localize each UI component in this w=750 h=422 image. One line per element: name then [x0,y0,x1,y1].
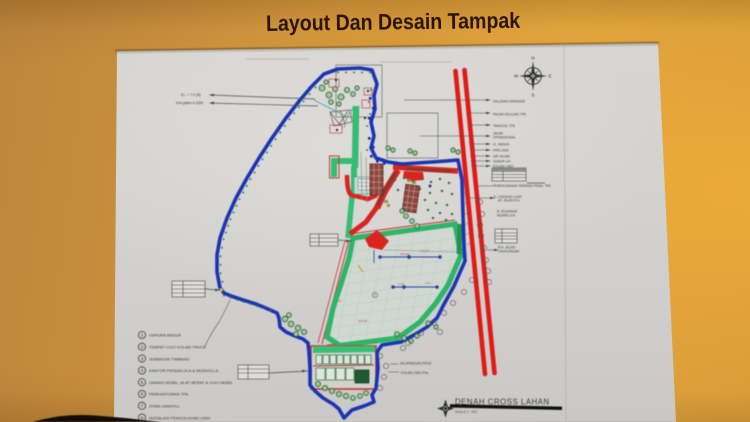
svg-text:1.67: 1.67 [398,282,404,286]
svg-text:E: E [548,74,551,79]
svg-text:JL. MASUK: JL. MASUK [493,142,510,146]
svg-text:PERKANTORAN TPA: PERKANTORAN TPA [149,392,189,397]
svg-text:7: 7 [141,404,144,409]
svg-text:KANTOR PENGELOLA & MUSHOLLA: KANTOR PENGELOLA & MUSHOLLA [149,368,219,373]
svg-text:S: S [531,93,534,98]
svg-text:ZONA LANDFILL: ZONA LANDFILL [149,404,181,409]
svg-text:PAGAR KELILING TPA: PAGAR KELILING TPA [493,112,527,116]
svg-text:TEMPAT CUCI KOLAM TRUCK: TEMPAT CUCI KOLAM TRUCK [149,345,206,350]
svg-text:KOLAM LINDI: KOLAM LINDI [493,164,513,168]
svg-text:N: N [531,56,534,61]
svg-text:JEMBATAN TIMBANG: JEMBATAN TIMBANG [149,356,190,361]
svg-text:PERENCANAAN TERPADU PENG. TPA: PERENCANAAN TERPADU PENG. TPA [493,184,552,188]
svg-text:SALURAN DRAINASE: SALURAN DRAINASE [493,99,525,103]
svg-text:1: 1 [141,333,144,338]
svg-text:LINGKUNGAN: LINGKUNGAN [498,250,520,254]
svg-text:5: 5 [141,380,144,385]
svg-text:2: 2 [141,345,144,350]
svg-text:3: 3 [141,356,144,361]
svg-text:150.00: 150.00 [400,252,410,256]
svg-text:4: 4 [141,368,144,373]
svg-text:7: 7 [374,294,376,298]
svg-text:Imd galian & S(M): Imd galian & S(M) [176,101,203,105]
svg-text:EL. + 7.0 (M): EL. + 7.0 (M) [181,93,201,97]
svg-text:KELAPANGAN PROD: KELAPANGAN PROD [400,362,432,366]
svg-text:GARASI MOBIL, ALAT BERAT & CUC: GARASI MOBIL, ALAT BERAT & CUCI MOBIL [149,380,234,385]
svg-text:GAPURA MASUK: GAPURA MASUK [149,333,182,338]
svg-text:SUMUR UJI: SUMUR UJI [493,159,510,163]
svg-text:W: W [514,74,519,79]
svg-text:MUARA JLN: MUARA JLN [497,214,516,218]
svg-text:6: 6 [141,392,144,397]
svg-text:KOLAM LINDI IPAL: KOLAM LINDI IPAL [401,371,429,375]
svg-text:AIR HUJAN: AIR HUJAN [493,154,511,158]
svg-text:SKALA 1 : 500: SKALA 1 : 500 [455,410,477,414]
svg-text:1.47: 1.47 [425,281,431,285]
svg-text:AT. JALAN R.A: AT. JALAN R.A [498,198,520,202]
svg-text:OPERASIONAL: OPERASIONAL [493,136,516,140]
svg-text:8: 8 [141,415,144,420]
svg-text:PIPA LINDI: PIPA LINDI [493,148,509,152]
svg-text:TANGGUL TPA: TANGGUL TPA [493,124,516,128]
svg-text:INSTALASI PENGOLAHAN LINDI: INSTALASI PENGOLAHAN LINDI [149,415,210,420]
svg-text:200.00: 200.00 [358,319,368,323]
